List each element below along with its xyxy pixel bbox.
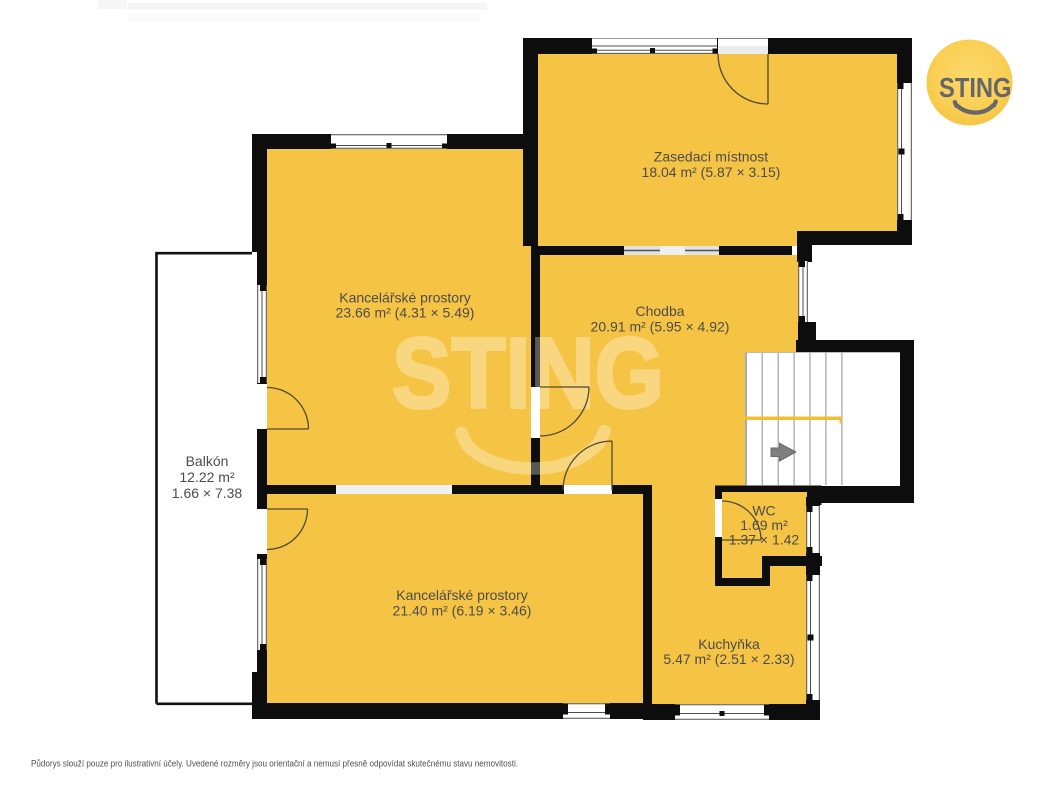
svg-text:Balkón: Balkón <box>186 453 229 469</box>
svg-text:Kancelářské prostory: Kancelářské prostory <box>396 587 528 603</box>
svg-text:12.22 m²: 12.22 m² <box>179 469 235 485</box>
svg-text:1.37 × 1.42: 1.37 × 1.42 <box>729 532 800 548</box>
svg-text:1.66 × 7.38: 1.66 × 7.38 <box>172 485 243 501</box>
svg-text:21.40 m² (6.19 × 3.46): 21.40 m² (6.19 × 3.46) <box>393 603 532 619</box>
svg-text:Chodba: Chodba <box>635 303 684 319</box>
svg-text:Zasedací místnost: Zasedací místnost <box>654 149 768 165</box>
svg-text:Půdorys slouží pouze pro ilust: Půdorys slouží pouze pro ilustrativní úč… <box>31 759 518 769</box>
svg-text:Kancelářské prostory: Kancelářské prostory <box>339 290 471 306</box>
svg-text:Kuchyňka: Kuchyňka <box>698 636 760 652</box>
svg-text:23.66 m² (4.31 × 5.49): 23.66 m² (4.31 × 5.49) <box>336 305 475 321</box>
svg-text:5.47 m² (2.51 × 2.33): 5.47 m² (2.51 × 2.33) <box>663 651 794 667</box>
svg-text:18.04 m² (5.87 × 3.15): 18.04 m² (5.87 × 3.15) <box>642 164 781 180</box>
svg-text:STING: STING <box>939 72 1012 103</box>
svg-text:20.91 m² (5.95 × 4.92): 20.91 m² (5.95 × 4.92) <box>591 319 730 335</box>
